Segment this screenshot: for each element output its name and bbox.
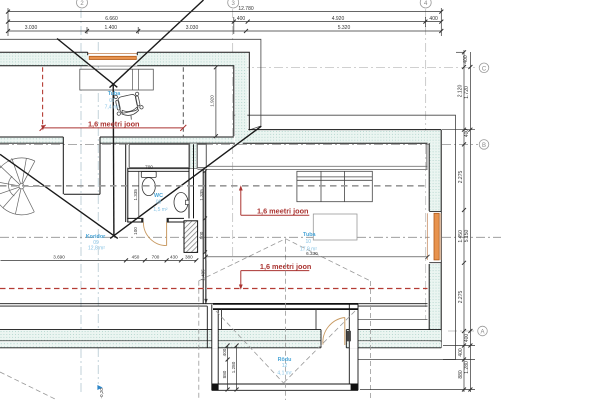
svg-text:5.320: 5.320 bbox=[338, 25, 351, 31]
svg-text:500: 500 bbox=[199, 231, 204, 239]
svg-text:1.335: 1.335 bbox=[199, 189, 204, 201]
svg-text:1.335: 1.335 bbox=[133, 189, 138, 201]
svg-text:100: 100 bbox=[133, 227, 138, 235]
svg-text:08: 08 bbox=[156, 199, 162, 205]
svg-text:880: 880 bbox=[458, 370, 464, 379]
svg-text:400: 400 bbox=[222, 348, 227, 356]
svg-text:1.920: 1.920 bbox=[210, 95, 215, 107]
svg-text:12,8 m²: 12,8 m² bbox=[88, 246, 105, 252]
svg-text:400: 400 bbox=[429, 16, 438, 22]
svg-text:12: 12 bbox=[282, 363, 288, 369]
svg-text:1.400: 1.400 bbox=[105, 25, 118, 31]
svg-text:700: 700 bbox=[145, 164, 153, 169]
svg-text:450: 450 bbox=[132, 255, 140, 260]
svg-text:12.780: 12.780 bbox=[238, 6, 254, 12]
svg-text:400: 400 bbox=[464, 334, 470, 343]
svg-text:3.030: 3.030 bbox=[186, 25, 199, 31]
svg-text:3.030: 3.030 bbox=[25, 25, 38, 31]
svg-text:1.280: 1.280 bbox=[231, 361, 236, 373]
svg-text:4.920: 4.920 bbox=[332, 16, 345, 22]
svg-text:C: C bbox=[482, 66, 487, 72]
svg-text:1,5 m²: 1,5 m² bbox=[153, 207, 168, 213]
svg-text:1.450: 1.450 bbox=[458, 230, 464, 243]
svg-text:WC: WC bbox=[154, 193, 163, 199]
svg-text:2.275: 2.275 bbox=[458, 291, 464, 304]
svg-text:2.275: 2.275 bbox=[458, 171, 464, 184]
svg-text:6.660: 6.660 bbox=[105, 16, 118, 22]
svg-text:B: B bbox=[482, 143, 486, 149]
svg-text:5.150: 5.150 bbox=[464, 230, 470, 243]
svg-text:17,9 m²: 17,9 m² bbox=[300, 246, 317, 252]
svg-text:4,1 m²: 4,1 m² bbox=[277, 371, 292, 377]
svg-text:400: 400 bbox=[237, 16, 246, 22]
svg-text:1,6 meetri joon: 1,6 meetri joon bbox=[257, 207, 309, 216]
svg-text:880: 880 bbox=[222, 370, 227, 378]
svg-text:400: 400 bbox=[464, 129, 470, 138]
svg-text:07: 07 bbox=[109, 98, 115, 104]
svg-text:Tuba: Tuba bbox=[108, 91, 121, 97]
svg-text:1.280: 1.280 bbox=[464, 361, 470, 374]
svg-text:1.435: 1.435 bbox=[200, 269, 205, 281]
svg-text:3.690: 3.690 bbox=[53, 255, 65, 260]
svg-text:Rõdu: Rõdu bbox=[278, 357, 292, 363]
svg-text:700: 700 bbox=[152, 255, 160, 260]
svg-text:380: 380 bbox=[185, 255, 193, 260]
svg-text:400: 400 bbox=[458, 348, 464, 357]
svg-text:1,6 meetri joon: 1,6 meetri joon bbox=[88, 120, 140, 129]
svg-text:430: 430 bbox=[170, 255, 178, 260]
svg-text:2.120: 2.120 bbox=[457, 85, 463, 98]
svg-text:400: 400 bbox=[463, 55, 469, 64]
svg-text:1.720: 1.720 bbox=[464, 86, 470, 99]
svg-text:7,4 m²: 7,4 m² bbox=[105, 104, 120, 110]
svg-text:A: A bbox=[480, 330, 484, 336]
svg-text:-0,20: -0,20 bbox=[99, 388, 104, 399]
svg-text:Tuba: Tuba bbox=[303, 232, 316, 238]
svg-text:10: 10 bbox=[306, 239, 312, 245]
